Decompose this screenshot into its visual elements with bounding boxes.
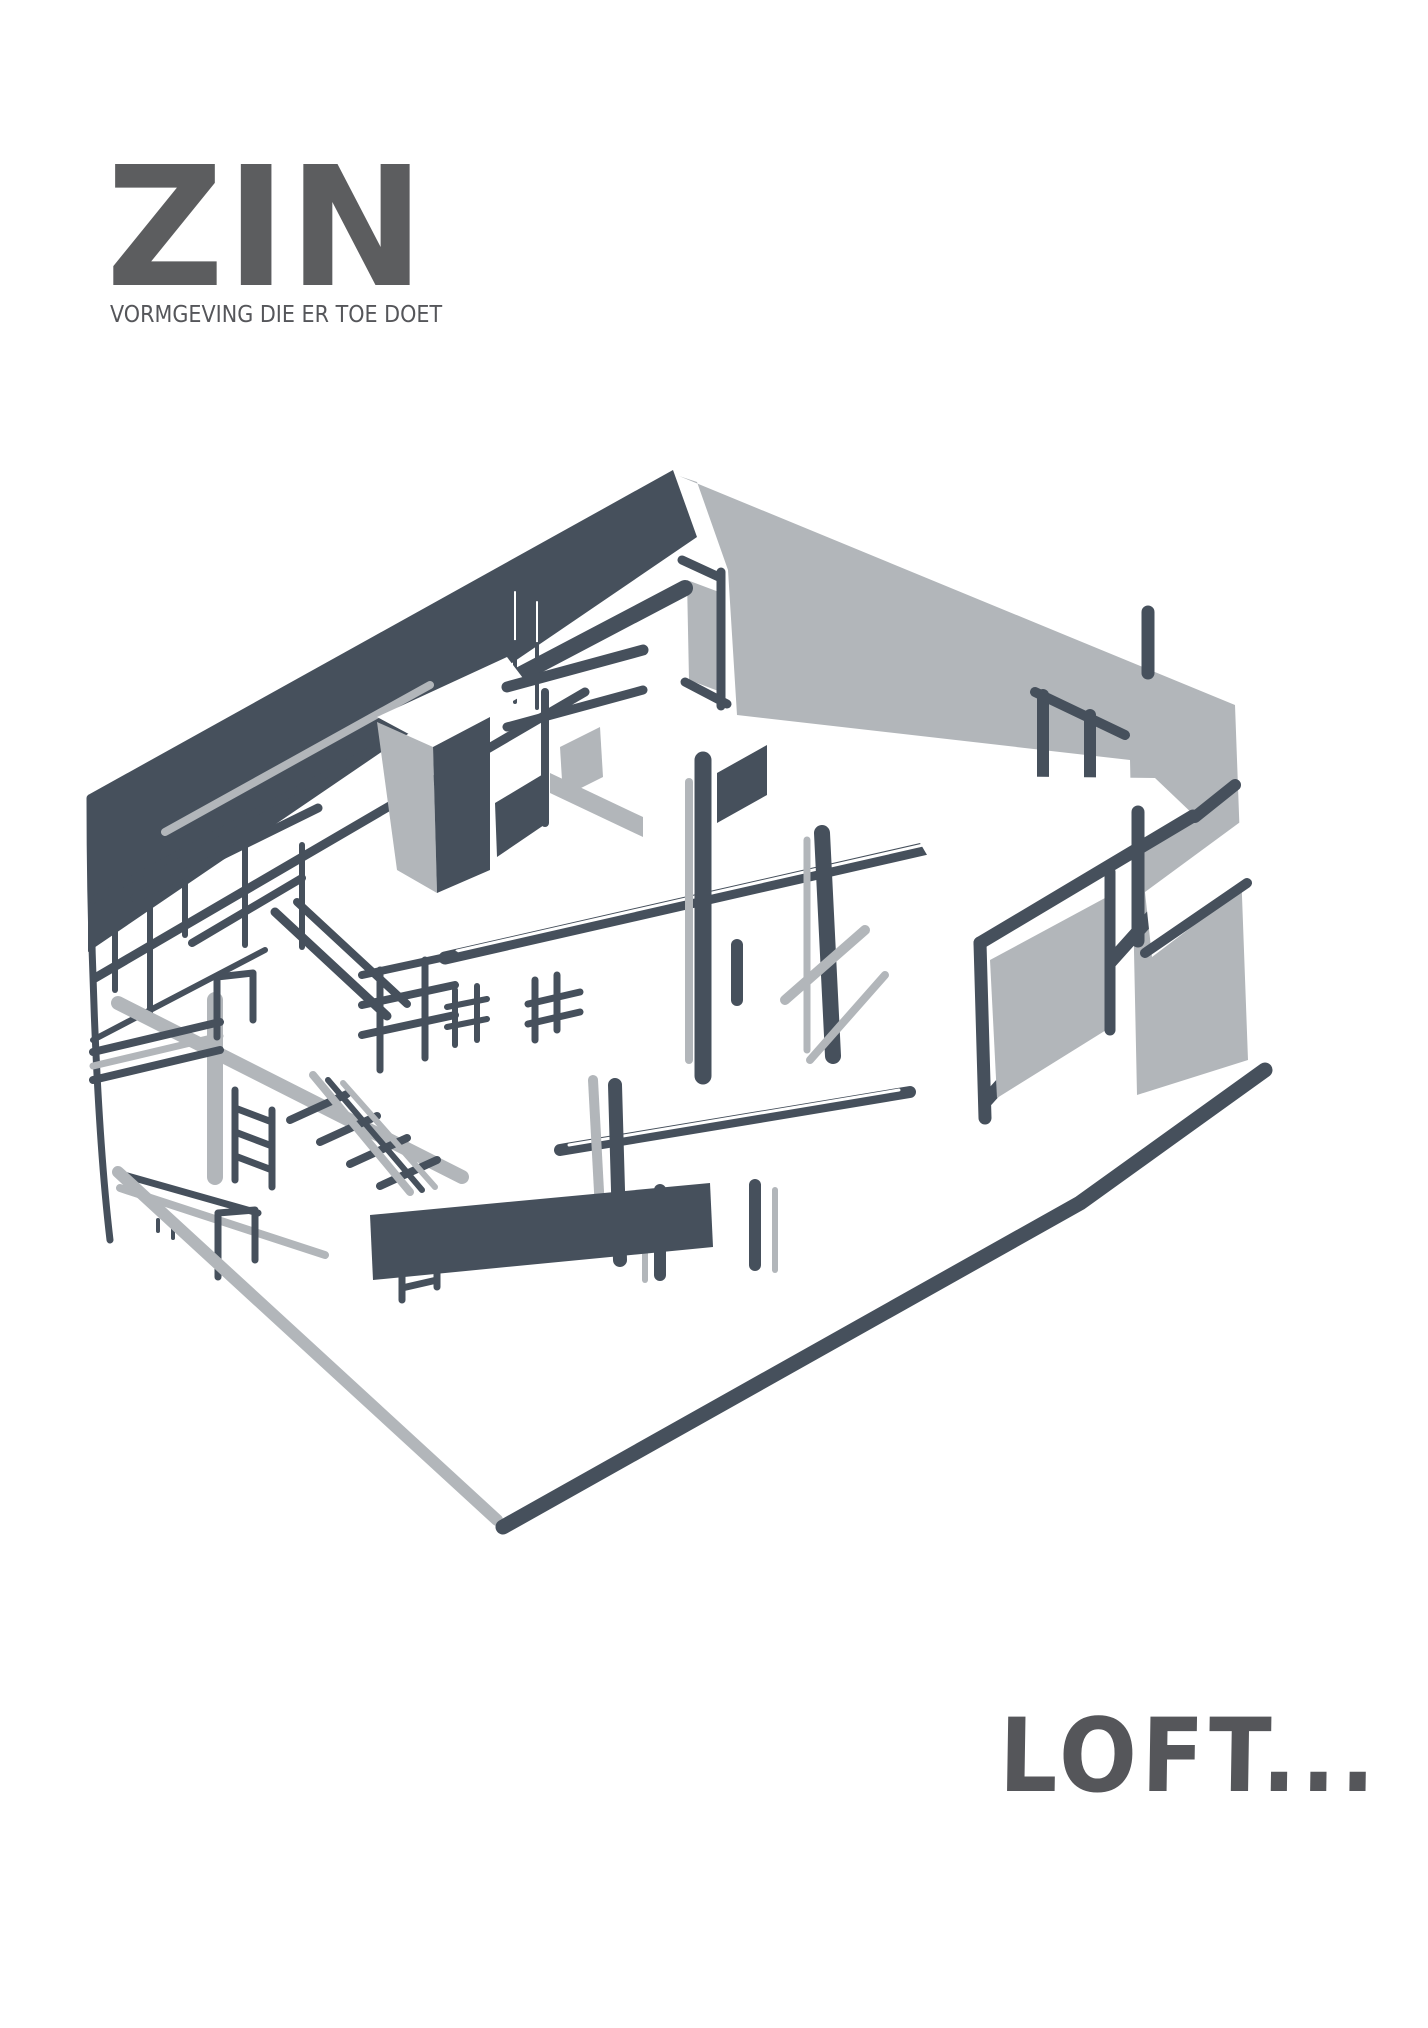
brand-tagline: VORMGEVING DIE ER TOE DOET	[110, 302, 442, 328]
loft-wordmark: LOFT...	[998, 1706, 1380, 1808]
loft-sketch-svg	[85, 430, 1275, 1550]
zin-logo: ZIN	[106, 146, 427, 312]
loft-axonometric-illustration	[85, 430, 1275, 1550]
poster-page: ZIN VORMGEVING DIE ER TOE DOET	[0, 0, 1428, 2028]
floor-edges	[118, 1070, 1265, 1527]
